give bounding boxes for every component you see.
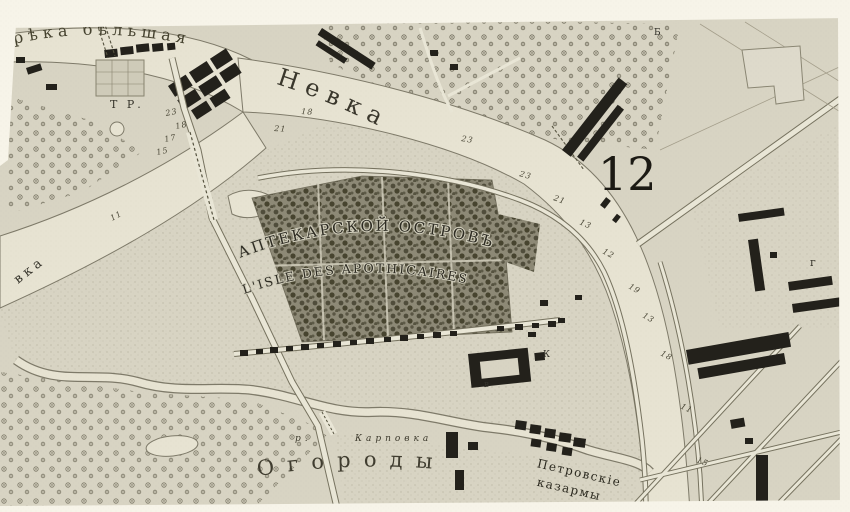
halftone-grain-overlay <box>0 0 850 512</box>
map-plate: рѣка бѣльшая Невка АПТЕКАРСКОЙ ОСТРОВЪ L… <box>0 0 850 512</box>
map-photo: рѣка бѣльшая Невка АПТЕКАРСКОЙ ОСТРОВЪ L… <box>0 0 850 512</box>
